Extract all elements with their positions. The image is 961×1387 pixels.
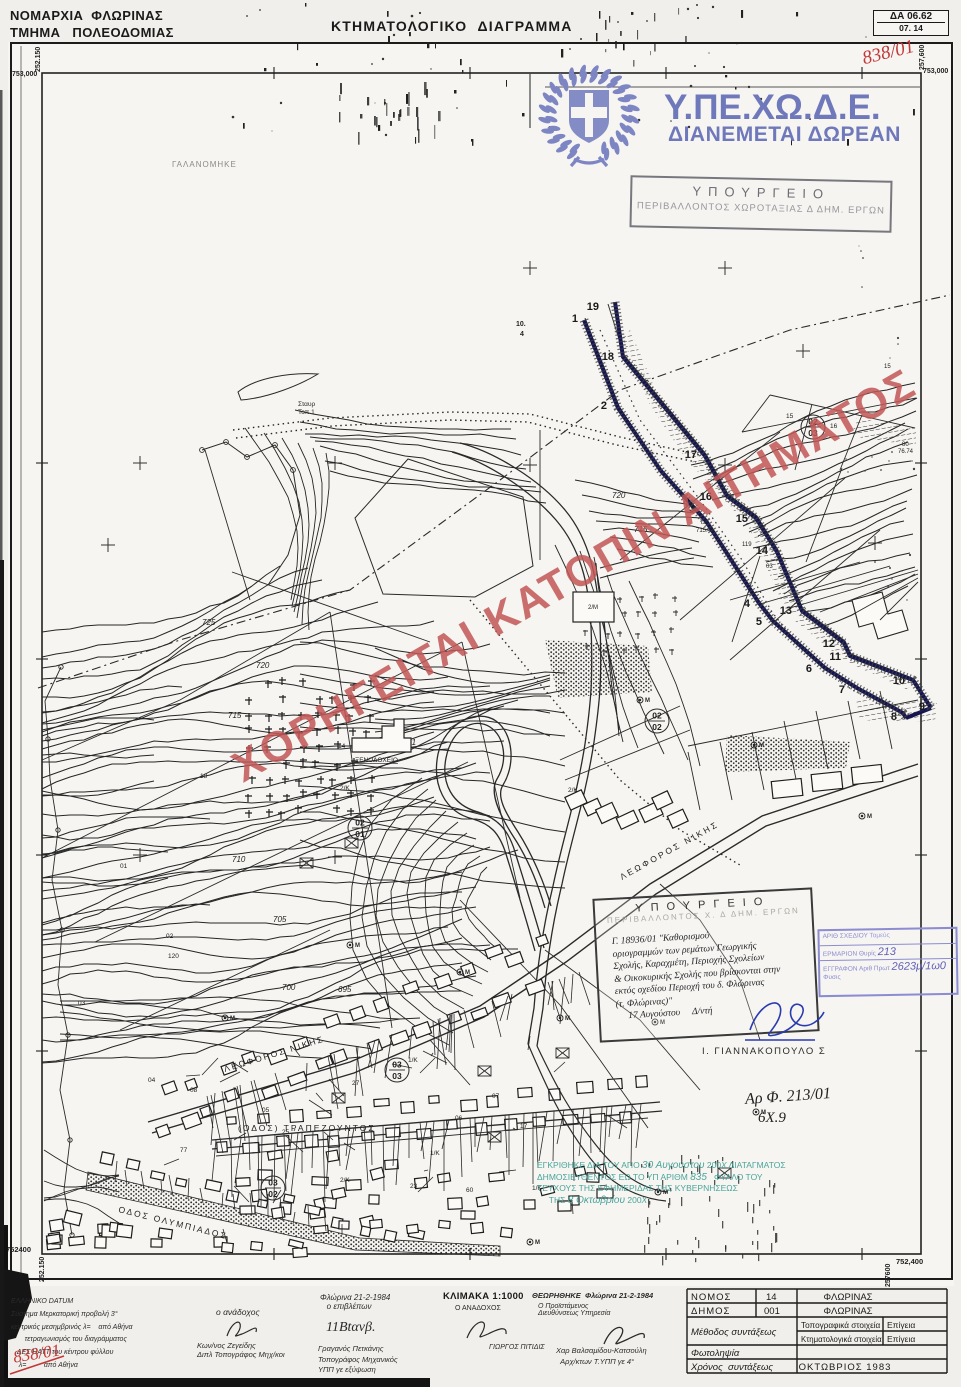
svg-text:ΦΛΩΡΙΝΑΣ: ΦΛΩΡΙΝΑΣ xyxy=(823,1306,872,1317)
svg-text:ΝΟΜΟΣ: ΝΟΜΟΣ xyxy=(691,1292,731,1303)
svg-text:ΦΛΩΡΙΝΑΣ: ΦΛΩΡΙΝΑΣ xyxy=(823,1292,872,1303)
svg-text:Επίγεια: Επίγεια xyxy=(887,1334,915,1344)
svg-text:ΔΗΜΟΣ: ΔΗΜΟΣ xyxy=(691,1306,730,1317)
svg-text:Χρόνος συντάξεως: Χρόνος συντάξεως xyxy=(690,1362,773,1373)
svg-text:001: 001 xyxy=(764,1306,780,1317)
svg-text:Επίγεια: Επίγεια xyxy=(887,1320,915,1330)
svg-text:Φωτοληψία: Φωτοληψία xyxy=(691,1348,740,1359)
svg-text:14: 14 xyxy=(766,1292,777,1303)
svg-text:Κτηματολογικά στοιχεία: Κτηματολογικά στοιχεία xyxy=(801,1335,882,1344)
svg-text:ΟΚΤΩΒΡΙΟΣ 1983: ΟΚΤΩΒΡΙΟΣ 1983 xyxy=(799,1362,892,1373)
svg-text:Τοπογραφικά στοιχεία: Τοπογραφικά στοιχεία xyxy=(801,1321,881,1330)
svg-text:Μέθοδος συντάξεως: Μέθοδος συντάξεως xyxy=(691,1327,777,1338)
